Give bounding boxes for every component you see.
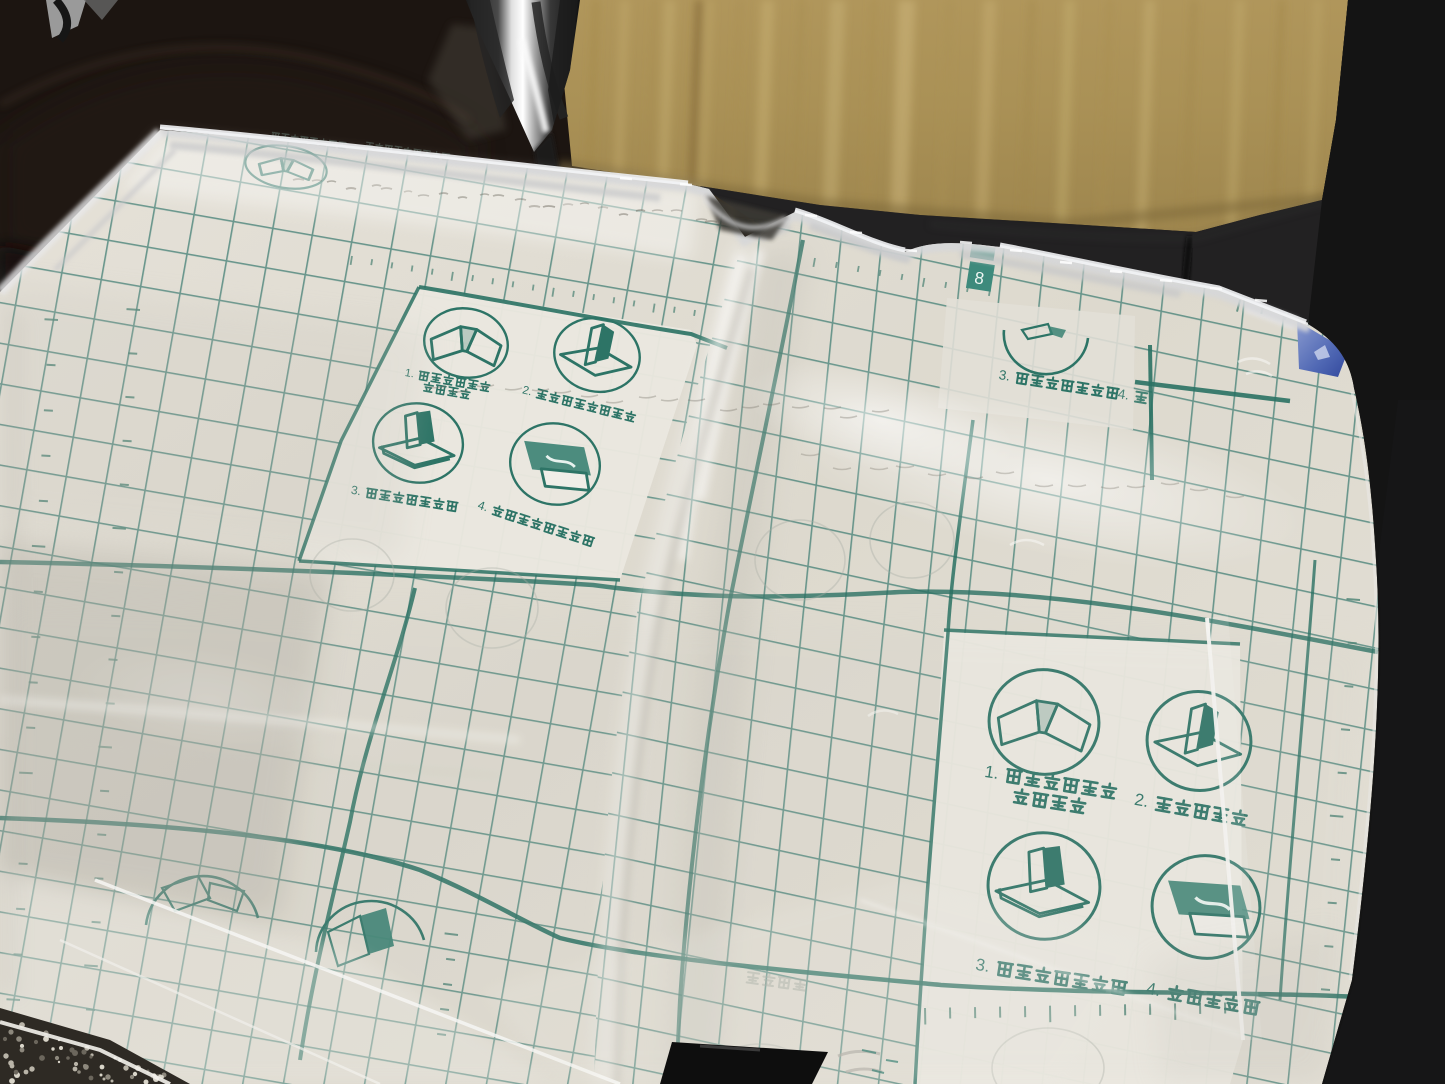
svg-text:3.: 3. [998, 367, 1011, 384]
svg-text:4.: 4. [1117, 386, 1130, 403]
